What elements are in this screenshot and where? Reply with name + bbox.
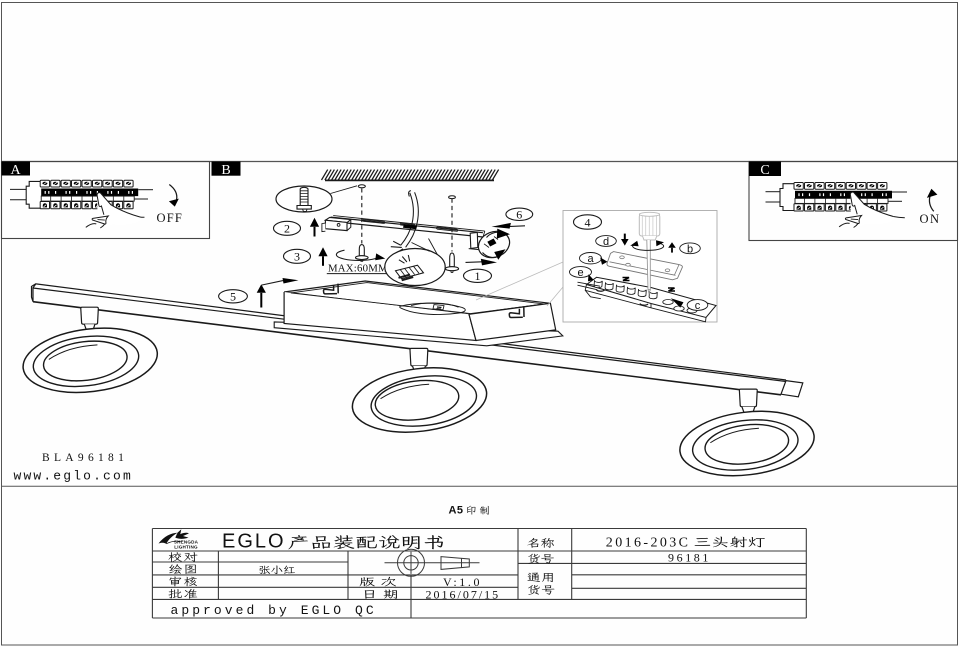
svg-text:e: e [577,267,583,279]
svg-text:2016-203C: 2016-203C [606,535,691,550]
svg-text:a: a [587,253,594,265]
svg-text:BLA96181: BLA96181 [42,452,128,464]
svg-text:2: 2 [284,222,290,236]
svg-text:B: B [221,163,230,178]
svg-text:approved by EGLO QC: approved by EGLO QC [171,603,377,618]
svg-text:b: b [687,243,693,255]
svg-text:LIGHTING: LIGHTING [174,545,198,550]
svg-text:EGLO: EGLO [222,531,286,553]
svg-text:3: 3 [294,250,300,264]
svg-text:MAX:60MM: MAX:60MM [328,263,388,275]
svg-text:ON: ON [920,212,941,226]
svg-text:6: 6 [516,208,522,222]
svg-text:2016/07/15: 2016/07/15 [426,587,501,601]
svg-text:A5: A5 [449,505,464,517]
svg-text:4: 4 [585,215,591,229]
svg-text:www.eglo.com: www.eglo.com [14,468,133,483]
svg-text:A: A [10,163,21,178]
svg-text:OFF: OFF [157,211,184,225]
svg-text:96181: 96181 [668,550,711,564]
svg-text:1: 1 [475,269,481,283]
svg-text:c: c [695,300,701,312]
svg-text:5: 5 [230,290,236,304]
svg-text:C: C [760,163,769,178]
svg-text:d: d [603,236,609,248]
